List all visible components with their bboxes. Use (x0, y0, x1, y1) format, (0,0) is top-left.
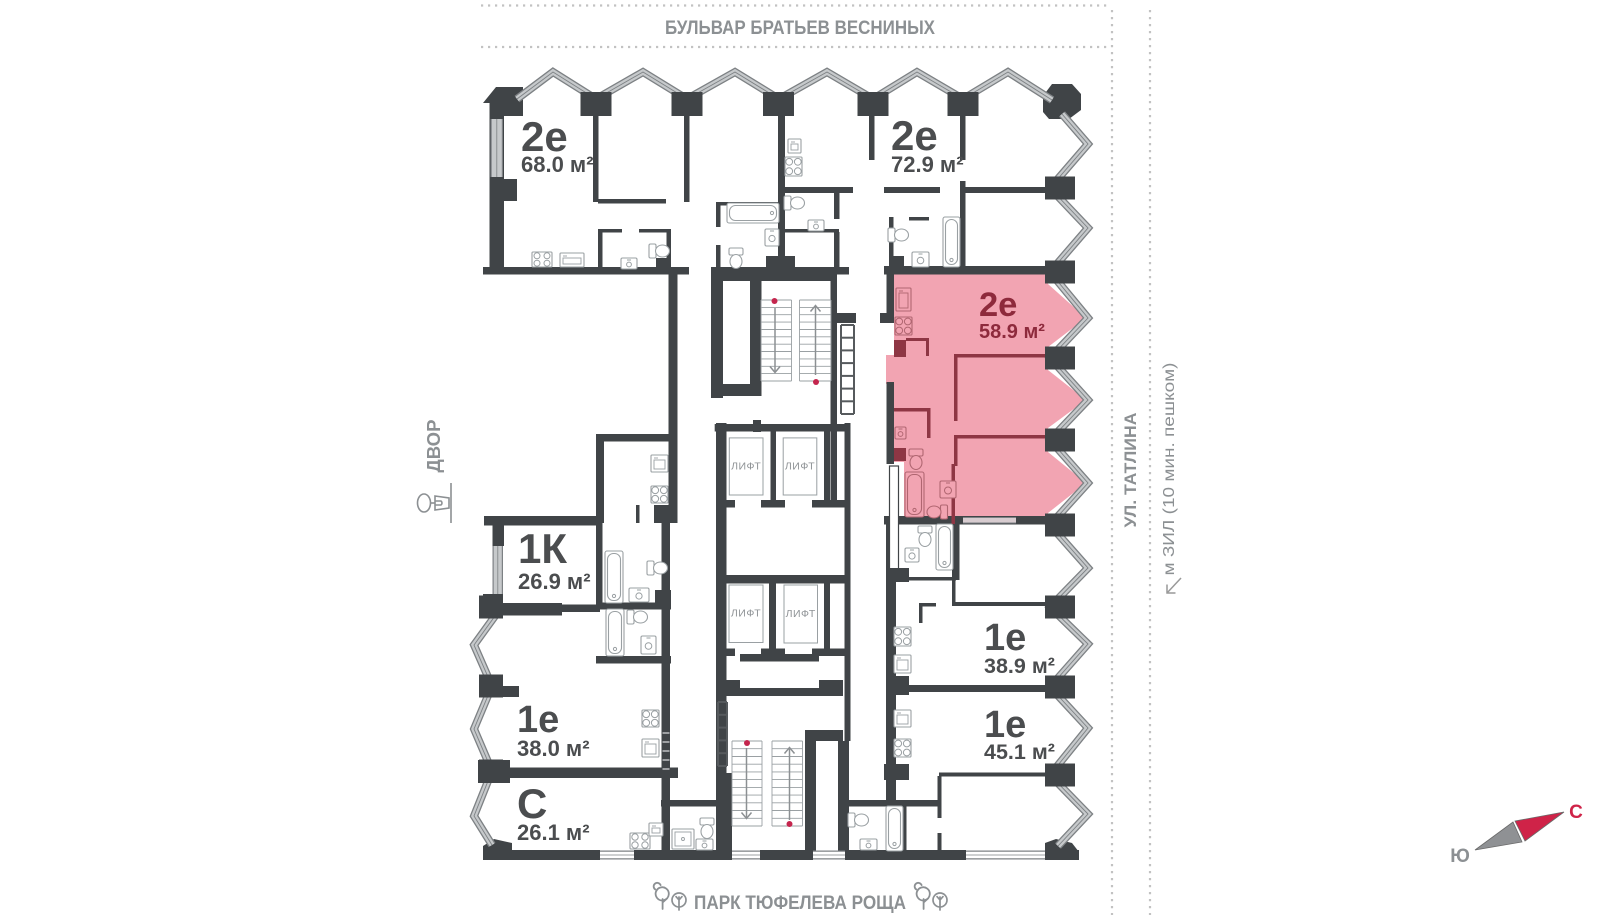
svg-text:26.9 м²: 26.9 м² (518, 569, 591, 594)
svg-text:УЛ. ТАТЛИНА: УЛ. ТАТЛИНА (1121, 413, 1140, 528)
svg-text:1К: 1К (518, 525, 567, 572)
svg-text:БУЛЬВАР БРАТЬЕВ ВЕСНИНЫХ: БУЛЬВАР БРАТЬЕВ ВЕСНИНЫХ (665, 17, 935, 39)
svg-text:ЛИФТ: ЛИФТ (731, 608, 761, 620)
svg-text:ПАРК ТЮФЕЛЕВА РОЩА: ПАРК ТЮФЕЛЕВА РОЩА (694, 892, 906, 914)
svg-text:1е: 1е (517, 699, 559, 741)
svg-text:м ЗИЛ (10 мин. пешком): м ЗИЛ (10 мин. пешком) (1161, 363, 1178, 576)
svg-text:45.1 м²: 45.1 м² (984, 740, 1055, 764)
svg-text:1е: 1е (984, 617, 1026, 659)
svg-text:ЛИФТ: ЛИФТ (731, 461, 761, 473)
svg-text:С: С (1569, 802, 1583, 823)
svg-text:2е: 2е (979, 286, 1017, 324)
svg-text:Ю: Ю (1450, 846, 1470, 867)
svg-text:68.0 м²: 68.0 м² (521, 152, 594, 177)
svg-text:72.9 м²: 72.9 м² (891, 152, 964, 177)
svg-text:ЛИФТ: ЛИФТ (785, 461, 815, 473)
svg-text:38.0 м²: 38.0 м² (517, 736, 590, 761)
svg-text:ЛИФТ: ЛИФТ (786, 608, 816, 620)
svg-text:ДВОР: ДВОР (424, 420, 444, 473)
svg-text:58.9 м²: 58.9 м² (979, 321, 1045, 343)
svg-text:26.1 м²: 26.1 м² (517, 820, 590, 845)
svg-text:38.9 м²: 38.9 м² (984, 654, 1055, 678)
